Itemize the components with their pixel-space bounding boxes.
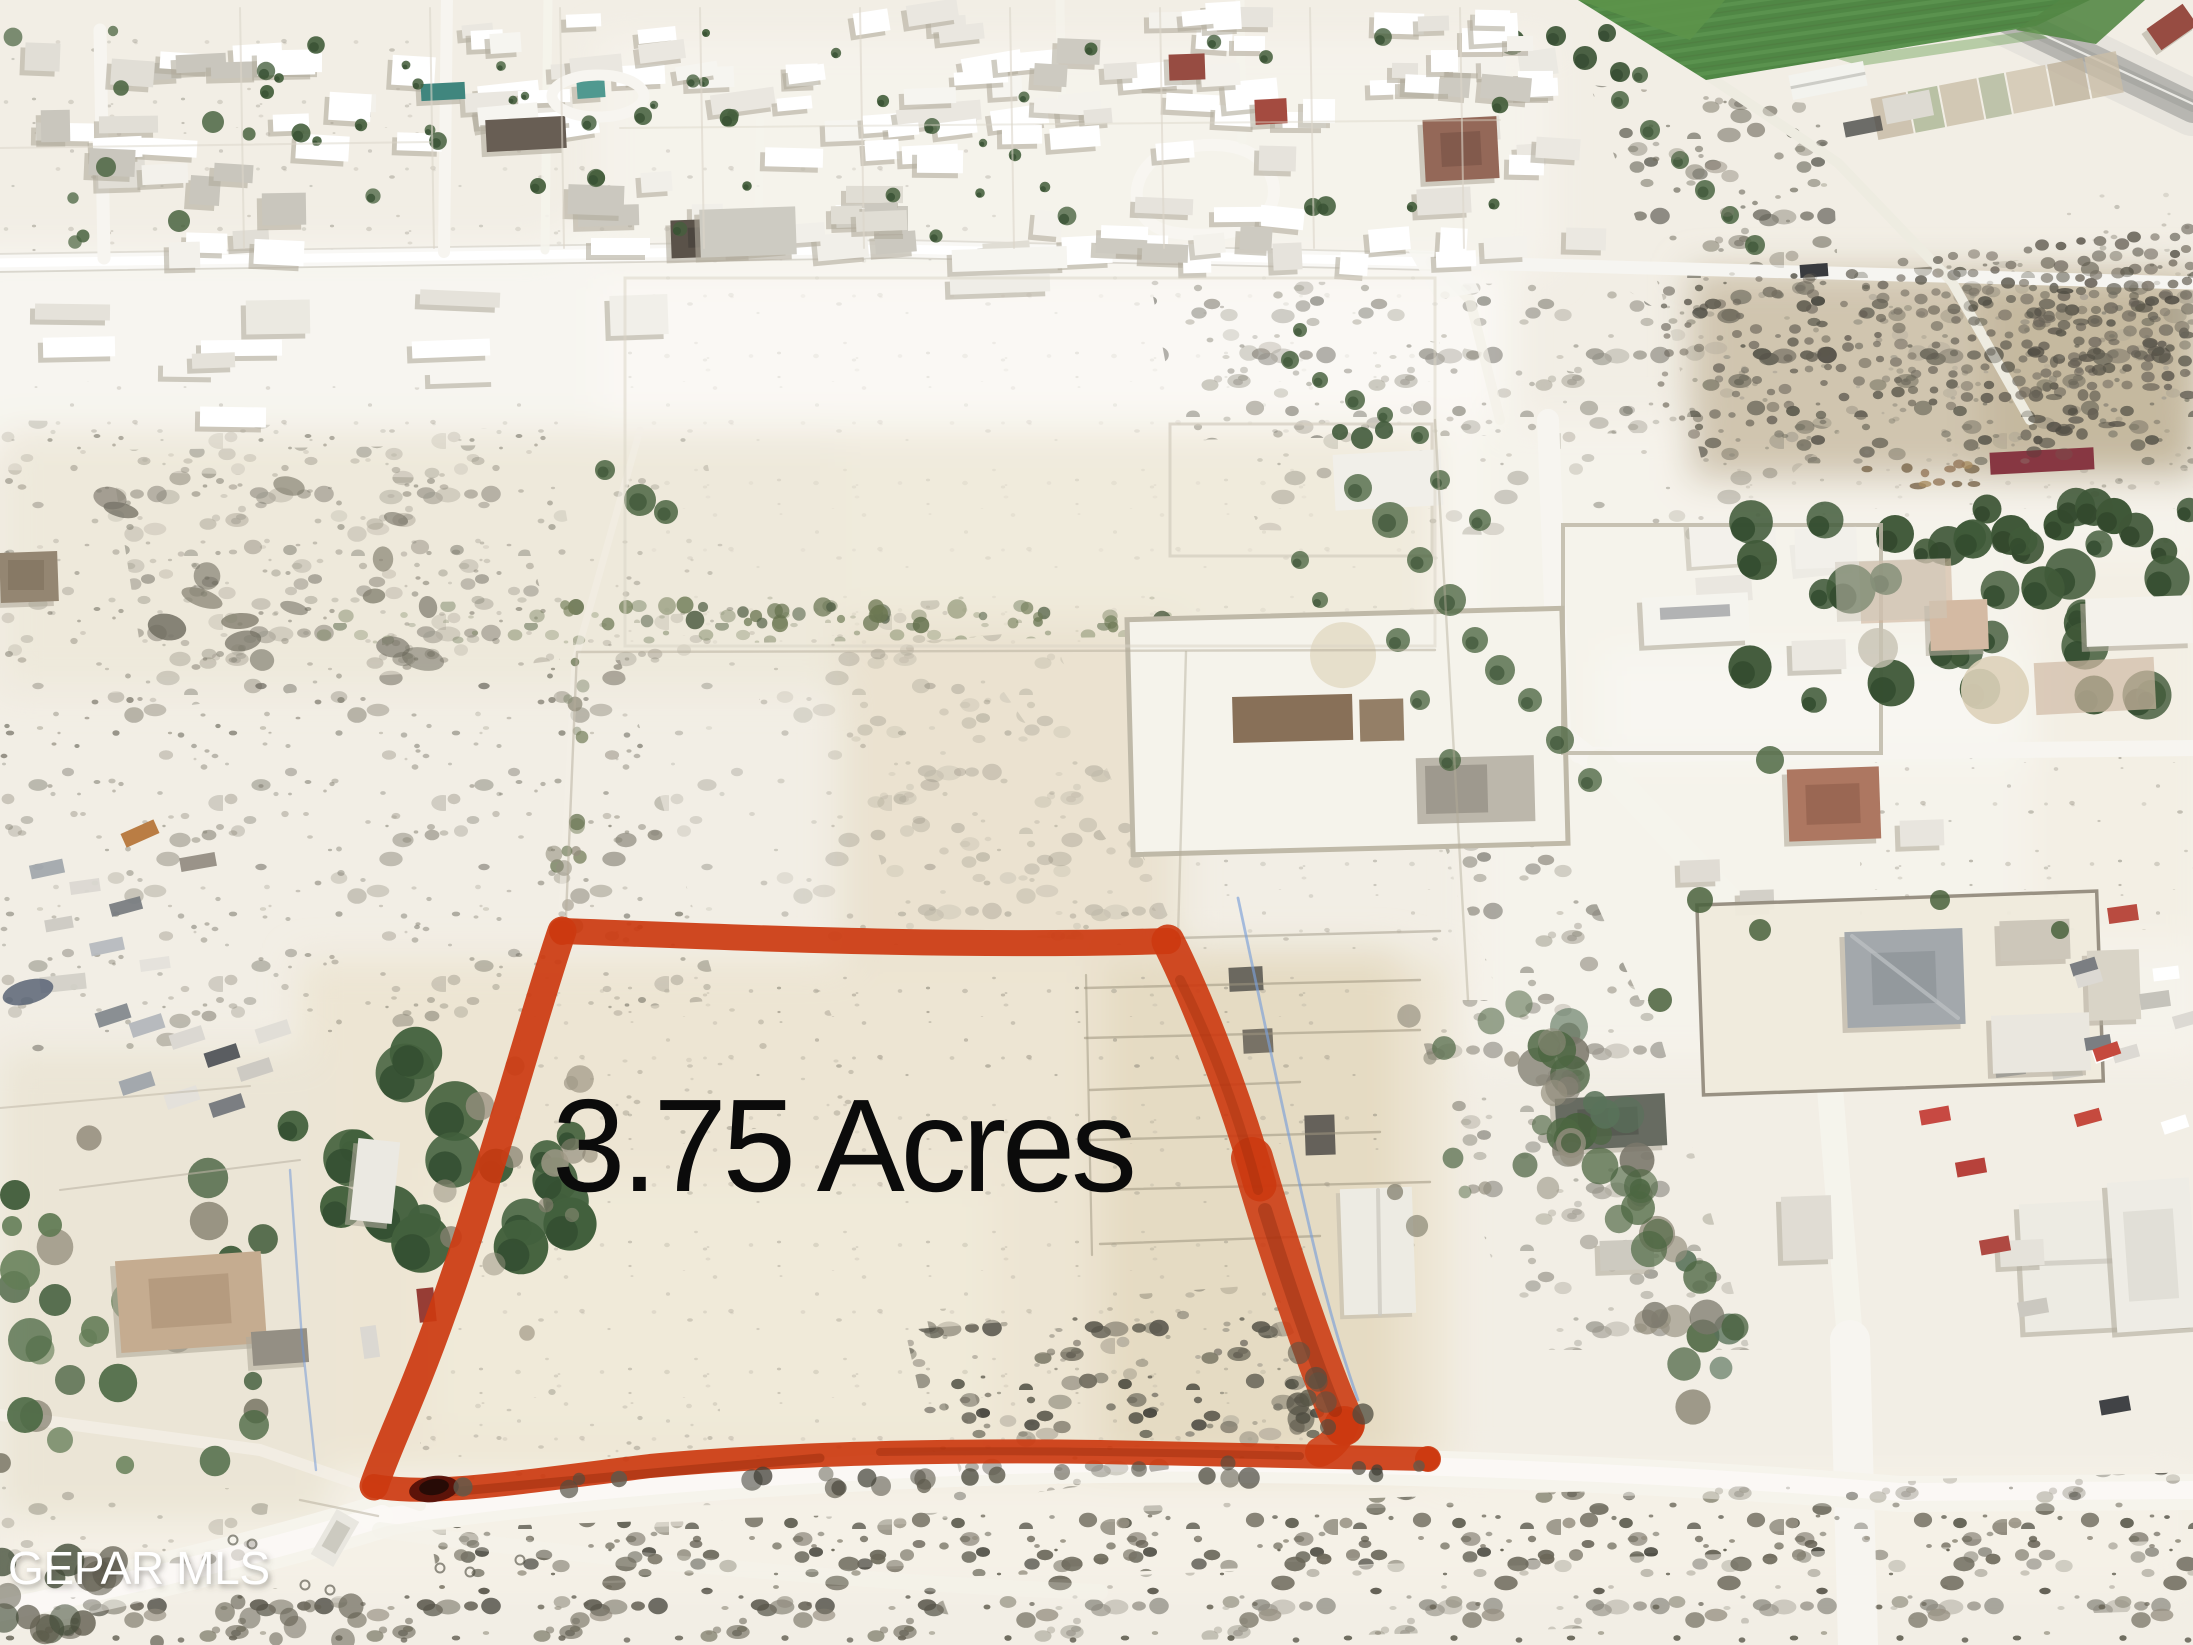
svg-text:3.75 Acres: 3.75 Acres	[552, 1072, 1137, 1219]
svg-text:GEPAR MLS: GEPAR MLS	[8, 1542, 270, 1594]
